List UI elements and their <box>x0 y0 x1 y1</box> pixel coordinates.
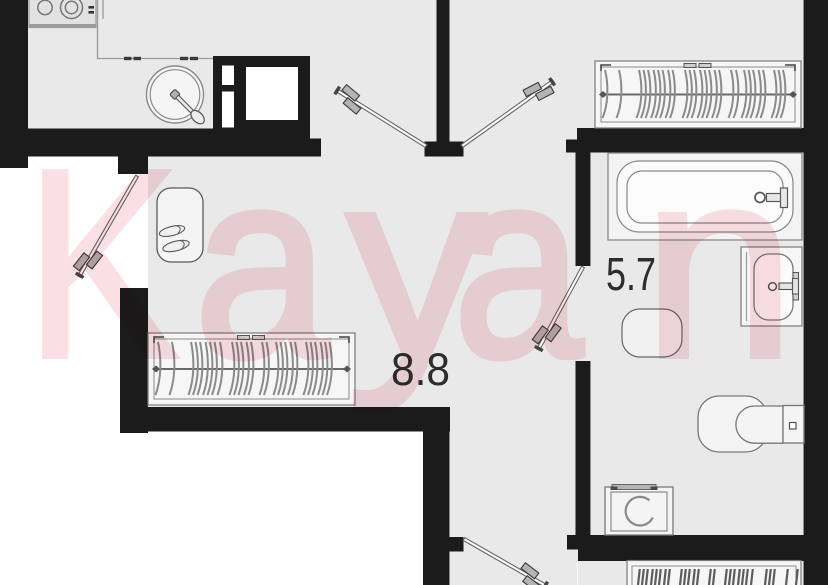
svg-text:a: a <box>194 114 331 413</box>
svg-text:K: K <box>26 114 178 413</box>
svg-text:a: a <box>453 114 584 413</box>
svg-text:n: n <box>643 114 795 413</box>
